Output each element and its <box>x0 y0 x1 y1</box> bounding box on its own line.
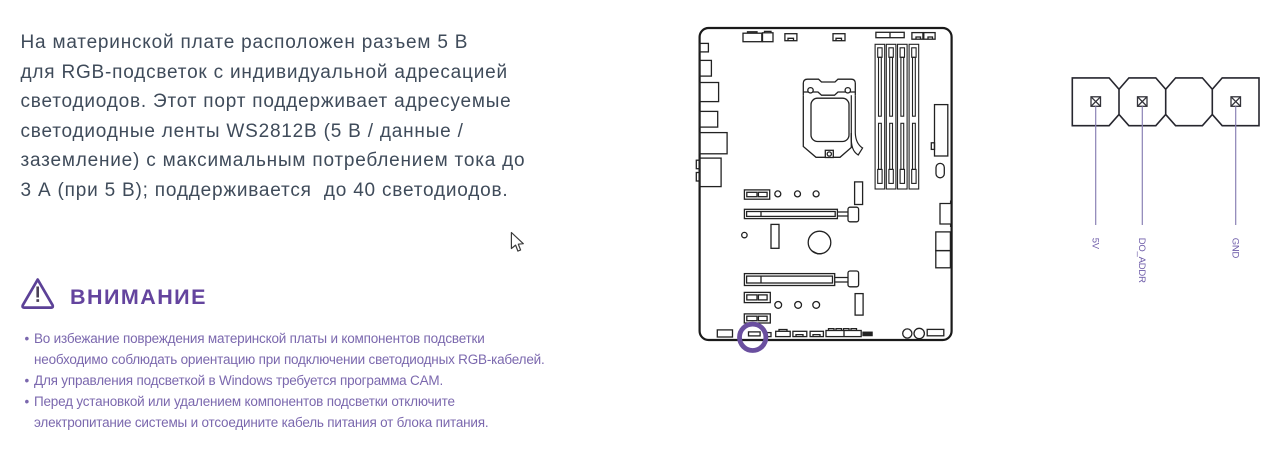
svg-text:GND: GND <box>1229 238 1240 259</box>
svg-text:DO_ADDR: DO_ADDR <box>1136 238 1147 283</box>
svg-text:5V: 5V <box>1089 238 1100 250</box>
